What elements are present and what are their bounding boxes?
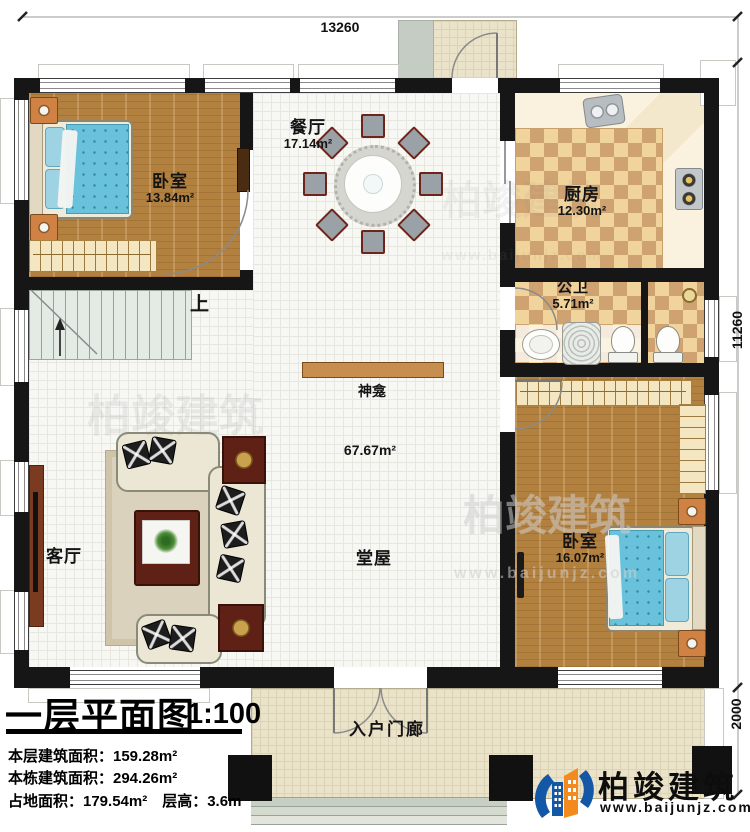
dining-chair (303, 172, 327, 196)
wall-segment (500, 268, 704, 282)
toilet-tank (608, 352, 638, 363)
room-label-bedroom-tl: 卧室 13.84m² (146, 172, 194, 206)
wall-segment (704, 490, 719, 688)
bath-partition (641, 282, 648, 363)
door-opening (500, 287, 515, 330)
window (704, 395, 719, 490)
wall-segment (427, 667, 558, 688)
door-jamb (500, 223, 515, 237)
tv-bedroom (517, 552, 524, 598)
room-label-bath: 公卫 5.71m² (552, 280, 593, 311)
window (70, 670, 200, 685)
toilet-tank (653, 352, 683, 363)
wardrobe-rail (520, 391, 686, 392)
bath-pendant (682, 288, 697, 303)
door-opening (452, 78, 498, 93)
wall-segment (395, 78, 452, 93)
bed-headboard (29, 120, 43, 217)
wall-segment (500, 93, 515, 127)
stove (675, 168, 703, 210)
wall-segment (14, 512, 29, 592)
toilet (656, 326, 680, 355)
stairs-up-label: 上 (190, 294, 210, 315)
floor-rear-porch (432, 20, 517, 80)
dimension-right: 11260 (729, 295, 745, 365)
stat-footprint-height: 占地面积：179.54m² 层高：3.6m (8, 790, 241, 811)
wardrobe-rail (33, 254, 151, 255)
wardrobe (29, 240, 157, 272)
window (14, 100, 29, 200)
wall-segment (704, 78, 719, 300)
window (14, 310, 29, 382)
window-sill (298, 64, 399, 79)
door-opening (500, 141, 515, 223)
door-opening (334, 667, 427, 688)
wall-segment (498, 78, 560, 93)
door-jamb (500, 127, 515, 141)
stat-building-area: 本栋建筑面积：294.26m² (8, 767, 177, 788)
window-sill (203, 64, 294, 79)
nightstand (678, 630, 706, 657)
cushion (148, 436, 177, 465)
window-sill (38, 64, 190, 79)
window (205, 78, 290, 93)
wardrobe (679, 404, 706, 494)
shower (562, 322, 601, 365)
plant (153, 528, 179, 554)
wall-segment (14, 200, 29, 310)
wall-segment (662, 667, 718, 688)
window-sill (719, 392, 737, 494)
wall-segment (14, 78, 29, 100)
door-leaf (237, 148, 250, 192)
door-opening (500, 377, 515, 432)
window (14, 462, 29, 512)
window (40, 78, 185, 93)
cushion (168, 624, 196, 652)
wall-segment (185, 78, 205, 93)
window (558, 670, 662, 685)
nightstand (678, 498, 706, 525)
room-label-dining: 餐厅 17.14m² (284, 118, 332, 152)
room-label-kitchen: 厨房 12.30m² (558, 185, 606, 219)
tv-living (33, 492, 38, 592)
plan-scale: 1:100 (187, 698, 261, 731)
wall-segment (14, 382, 29, 462)
porch-column (489, 755, 533, 801)
wall-segment (290, 78, 300, 93)
room-label-bedroom-r: 卧室 16.07m² (556, 532, 604, 566)
title-underline (6, 729, 242, 734)
room-label-hall: 堂屋 (356, 549, 392, 568)
cushion (216, 554, 246, 584)
side-table (222, 436, 266, 484)
window-sill (558, 64, 664, 79)
pillow (665, 578, 689, 622)
shrine-shelf (302, 362, 444, 378)
room-label-porch: 入户门廊 (349, 720, 425, 739)
window (704, 300, 719, 357)
window (560, 78, 660, 93)
floor-plan: 柏竣建筑 柏竣建筑 www.baijunjz.com 柏竣建筑 www.baij… (0, 0, 750, 832)
toilet (611, 326, 635, 355)
nightstand (30, 97, 58, 124)
window (300, 78, 395, 93)
dining-chair (419, 172, 443, 196)
cushion (220, 520, 249, 549)
entry-steps (251, 797, 507, 825)
dimension-porch: 2000 (728, 684, 744, 744)
wall-segment (500, 432, 515, 667)
wall-segment (14, 277, 253, 290)
wall-segment (240, 270, 253, 277)
staircase (29, 290, 192, 360)
nightstand (30, 214, 58, 241)
hall-area-label: 67.67m² (344, 443, 396, 459)
rear-door-mat (398, 20, 434, 80)
lazy-susan (363, 174, 383, 194)
wall-segment (500, 363, 704, 377)
wall-segment (704, 357, 719, 395)
side-table (218, 604, 264, 652)
brand-website: www.baijunjz.com (600, 799, 750, 815)
wall-segment (14, 667, 70, 688)
kitchen-sink (582, 93, 626, 128)
stat-floor-area: 本层建筑面积：159.28m² (8, 745, 177, 766)
bath-sink-bowl (529, 335, 553, 354)
pillow (665, 532, 689, 576)
wall-segment (240, 93, 253, 150)
room-label-living: 客厅 (46, 547, 82, 566)
dimension-top: 13260 (300, 19, 380, 35)
wardrobe (516, 380, 692, 406)
shrine-label: 神龛 (358, 384, 386, 400)
dining-chair (361, 230, 385, 254)
bed-headboard (692, 526, 706, 630)
window (14, 592, 29, 650)
wall-segment (200, 667, 334, 688)
dining-chair (361, 114, 385, 138)
